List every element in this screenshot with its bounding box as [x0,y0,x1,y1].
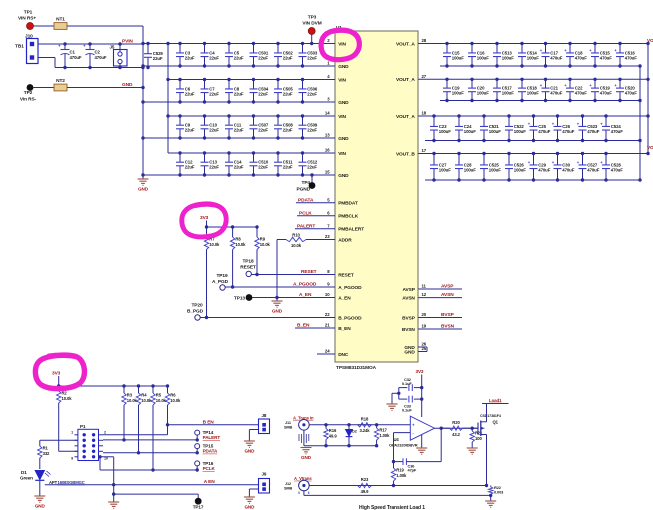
svg-text:470uF: 470uF [538,167,550,172]
svg-text:AVSP: AVSP [402,287,415,293]
svg-text:22uF: 22uF [258,165,268,170]
svg-text:B_PGD: B_PGD [187,309,204,315]
svg-text:0.1uF: 0.1uF [402,381,412,386]
svg-text:470uF: 470uF [587,129,599,134]
svg-text:R23: R23 [361,477,369,482]
svg-text:VOUT_A: VOUT_A [396,41,415,47]
svg-text:10: 10 [325,292,330,297]
svg-text:VIN: VIN [338,41,346,47]
svg-text:100uF: 100uF [439,167,451,172]
svg-text:3.24k: 3.24k [360,428,371,433]
svg-text:100uF: 100uF [502,55,514,60]
svg-text:BVSP: BVSP [402,315,416,321]
svg-text:SMB: SMB [284,426,292,430]
svg-text:GND: GND [338,64,349,70]
svg-text:470uF: 470uF [70,55,82,60]
svg-text:22uF: 22uF [234,91,244,96]
svg-text:R10: R10 [292,233,300,238]
svg-text:100uF: 100uF [527,55,539,60]
svg-text:D1: D1 [21,470,27,475]
svg-text:22uF: 22uF [283,128,293,133]
svg-text:9: 9 [71,457,73,461]
svg-text:R18: R18 [361,417,369,422]
svg-text:10.0k: 10.0k [127,398,138,403]
svg-text:22uF: 22uF [209,91,219,96]
svg-text:22uF: 22uF [307,128,317,133]
svg-text:10.0k: 10.0k [170,398,181,403]
svg-text:470uF: 470uF [562,167,574,172]
svg-text:VOU: VOU [647,145,653,150]
svg-text:22uF: 22uF [209,165,219,170]
svg-text:10.0k: 10.0k [260,242,271,247]
svg-text:332: 332 [43,451,50,456]
svg-text:AVSP: AVSP [441,283,454,289]
svg-text:22uF: 22uF [307,165,317,170]
svg-text:RESET: RESET [338,272,354,278]
svg-text:0.1uF: 0.1uF [402,408,412,413]
svg-text:22uF: 22uF [185,128,195,133]
svg-text:470uF: 470uF [550,91,562,96]
svg-text:PMBCLK: PMBCLK [338,214,359,220]
svg-text:NT1: NT1 [56,17,65,23]
svg-text:PCLK: PCLK [203,466,216,471]
svg-text:22uF: 22uF [283,55,293,60]
svg-text:100uF: 100uF [477,55,489,60]
svg-text:100uF: 100uF [477,91,489,96]
svg-text:PDATA: PDATA [203,449,218,454]
svg-text:High Speed Transient Load 1: High Speed Transient Load 1 [359,505,425,510]
svg-text:19: 19 [422,324,427,329]
svg-text:APT: APT [49,480,58,485]
svg-text:10.0k: 10.0k [235,242,246,247]
svg-text:27: 27 [422,74,427,79]
svg-text:100uF: 100uF [489,167,501,172]
svg-text:PALERT: PALERT [203,435,221,440]
svg-text:TPSM831D31MOA: TPSM831D31MOA [336,365,377,371]
svg-text:A_PGD: A_PGD [212,279,229,285]
svg-text:B EN: B EN [203,419,215,425]
svg-text:A_PGOOD: A_PGOOD [293,281,317,287]
svg-text:A_PGOOD: A_PGOOD [338,285,362,291]
svg-text:PGND: PGND [297,187,311,193]
svg-text:16: 16 [325,148,330,153]
svg-text:470uF: 470uF [600,91,612,96]
svg-text:U4: U4 [394,437,400,442]
svg-text:AVSN: AVSN [402,295,415,301]
svg-text:GND: GND [35,504,46,509]
svg-text:GND: GND [138,187,149,192]
svg-text:R9: R9 [260,237,266,242]
svg-text:GND: GND [244,505,255,510]
svg-text:GND: GND [404,349,415,355]
svg-text:TP19: TP19 [216,273,227,279]
svg-text:R8: R8 [235,237,241,242]
svg-text:C2: C2 [95,50,101,55]
svg-text:R19: R19 [396,468,404,473]
svg-text:PMBALERT: PMBALERT [338,227,364,233]
svg-text:100uF: 100uF [502,91,514,96]
svg-text:VOUT_A: VOUT_A [396,77,415,83]
svg-text:3V3: 3V3 [200,215,209,221]
svg-text:10.0k: 10.0k [291,243,302,248]
svg-text:470uF: 470uF [575,91,587,96]
svg-text:470uF: 470uF [611,167,623,172]
svg-text:R3: R3 [127,393,133,398]
svg-text:17: 17 [422,148,427,153]
svg-text:100: 100 [475,436,482,441]
svg-text:CSD17381F4: CSD17381F4 [480,414,501,418]
svg-text:VIN: VIN [338,151,346,157]
svg-text:22uF: 22uF [283,165,293,170]
svg-text:12: 12 [422,292,427,297]
svg-text:100uF: 100uF [464,129,476,134]
svg-text:TP3: TP3 [308,15,317,21]
svg-text:VOUT_B: VOUT_B [396,151,415,157]
svg-text:22: 22 [325,312,330,317]
svg-text:A_EN: A_EN [299,292,312,298]
svg-text:RESET: RESET [301,269,317,275]
svg-text:VIN: VIN [338,77,346,83]
svg-text:R20: R20 [452,420,460,425]
svg-text:0.003: 0.003 [494,490,504,495]
svg-text:3V3: 3V3 [416,369,424,374]
svg-text:49.9: 49.9 [361,489,370,494]
svg-text:GND: GND [338,100,349,106]
svg-text:2: 2 [104,431,106,435]
svg-text:10.0k: 10.0k [156,398,167,403]
svg-text:A EN: A EN [204,479,216,485]
svg-text:TP18: TP18 [242,259,253,265]
svg-text:B_EN: B_EN [338,326,351,332]
svg-text:TP17: TP17 [193,505,204,510]
svg-text:100uF: 100uF [452,91,464,96]
svg-text:100uF: 100uF [514,167,526,172]
svg-text:TP20: TP20 [191,303,202,309]
svg-text:15: 15 [325,170,330,175]
svg-text:20: 20 [422,312,427,317]
svg-text:22uF: 22uF [307,55,317,60]
svg-text:VIN: VIN [338,114,346,120]
svg-text:VIN DVM: VIN DVM [302,21,321,27]
svg-text:22uF: 22uF [209,128,219,133]
svg-text:470uF: 470uF [611,129,623,134]
svg-text:GND: GND [272,309,283,314]
svg-text:Load1: Load1 [489,398,502,403]
svg-text:3V3: 3V3 [52,371,61,377]
svg-text:22uF: 22uF [209,55,219,60]
svg-text:Q1: Q1 [493,420,499,425]
svg-text:PVIN: PVIN [122,39,133,45]
svg-text:24: 24 [325,349,330,354]
svg-text:TP1: TP1 [24,10,33,16]
svg-text:P1: P1 [80,424,86,429]
svg-text:J11: J11 [285,421,291,425]
svg-text:100uF: 100uF [439,129,451,134]
svg-text:R2: R2 [62,391,68,396]
svg-text:R5: R5 [156,393,162,398]
svg-text:21: 21 [325,323,330,328]
svg-text:10.0k: 10.0k [209,242,220,247]
svg-text:100uF: 100uF [489,129,501,134]
svg-text:J12: J12 [285,482,291,486]
svg-text:VOU: VOU [647,38,653,43]
svg-text:28: 28 [422,38,427,43]
svg-text:R1: R1 [43,446,49,451]
svg-text:ADDR: ADDR [338,237,352,243]
svg-text:47pF: 47pF [408,468,417,473]
svg-text:14: 14 [325,111,330,116]
svg-text:22uF: 22uF [234,128,244,133]
svg-text:22uF: 22uF [185,55,195,60]
svg-text:100uF: 100uF [452,55,464,60]
svg-text:R4: R4 [141,393,147,398]
svg-text:C1: C1 [70,50,76,55]
svg-text:R16: R16 [329,428,337,433]
svg-text:J8: J8 [262,413,267,418]
svg-text:TP13: TP13 [234,296,245,302]
svg-text:AVSN: AVSN [441,292,454,298]
svg-text:R6: R6 [170,393,176,398]
svg-text:43.2: 43.2 [452,432,461,437]
svg-text:1.00k: 1.00k [396,473,407,478]
svg-text:470uF: 470uF [587,167,599,172]
svg-text:470uF: 470uF [538,129,550,134]
svg-text:470uF: 470uF [575,55,587,60]
svg-text:BVSN: BVSN [402,327,416,333]
svg-text:22uF: 22uF [185,165,195,170]
svg-text:1.00k: 1.00k [379,433,390,438]
svg-text:22uF: 22uF [185,91,195,96]
svg-text:J9: J9 [262,472,267,477]
svg-text:BVSP: BVSP [441,312,455,318]
svg-text:VIN RS+: VIN RS+ [18,16,36,22]
svg-text:22uF: 22uF [234,165,244,170]
svg-text:GND: GND [301,455,312,460]
svg-text:1: 1 [71,431,73,435]
svg-text:100uF: 100uF [514,129,526,134]
svg-text:GND: GND [338,173,349,179]
svg-text:18: 18 [422,111,427,116]
svg-text:100uF: 100uF [464,167,476,172]
svg-text:23: 23 [325,234,330,239]
svg-text:22uF: 22uF [234,55,244,60]
svg-text:VOUT_A: VOUT_A [396,114,415,120]
svg-text:22uF: 22uF [258,91,268,96]
svg-text:10.0k: 10.0k [62,396,73,401]
svg-text:A_EN: A_EN [338,295,351,301]
svg-text:100uF: 100uF [527,91,539,96]
svg-text:22uF: 22uF [307,91,317,96]
svg-text:B_PGOOD: B_PGOOD [338,315,362,321]
svg-text:Vin RS-: Vin RS- [20,97,37,103]
svg-text:R17: R17 [379,428,387,433]
svg-text:22uF: 22uF [283,91,293,96]
svg-text:RESET: RESET [240,265,256,271]
svg-text:470uF: 470uF [95,55,107,60]
svg-text:J5: J5 [110,45,115,50]
svg-text:PMBDAT: PMBDAT [338,201,358,207]
svg-text:10.0k: 10.0k [141,398,152,403]
svg-text:470uF: 470uF [600,55,612,60]
svg-text:49.9: 49.9 [329,434,338,439]
svg-text:DNC: DNC [338,352,349,358]
svg-text:TB1: TB1 [15,44,24,50]
svg-text:SMB: SMB [284,487,292,491]
svg-text:1608SGBMGC: 1608SGBMGC [58,480,85,485]
svg-text:470uF: 470uF [625,91,637,96]
svg-text:B_EN: B_EN [297,322,310,328]
svg-text:GND: GND [122,82,133,88]
svg-text:470uF: 470uF [625,55,637,60]
svg-text:GND: GND [244,449,255,454]
svg-text:22uF: 22uF [258,128,268,133]
svg-text:NT2: NT2 [56,78,65,84]
svg-text:Green: Green [20,476,33,481]
svg-text:22uF: 22uF [258,55,268,60]
svg-text:11: 11 [422,284,427,289]
svg-text:GND: GND [338,136,349,142]
svg-text:TP2: TP2 [24,90,33,96]
svg-text:22uF: 22uF [153,56,163,61]
svg-text:BVSN: BVSN [441,323,455,329]
svg-text:470uF: 470uF [562,129,574,134]
svg-text:13: 13 [325,133,330,138]
svg-text:470uF: 470uF [550,55,562,60]
